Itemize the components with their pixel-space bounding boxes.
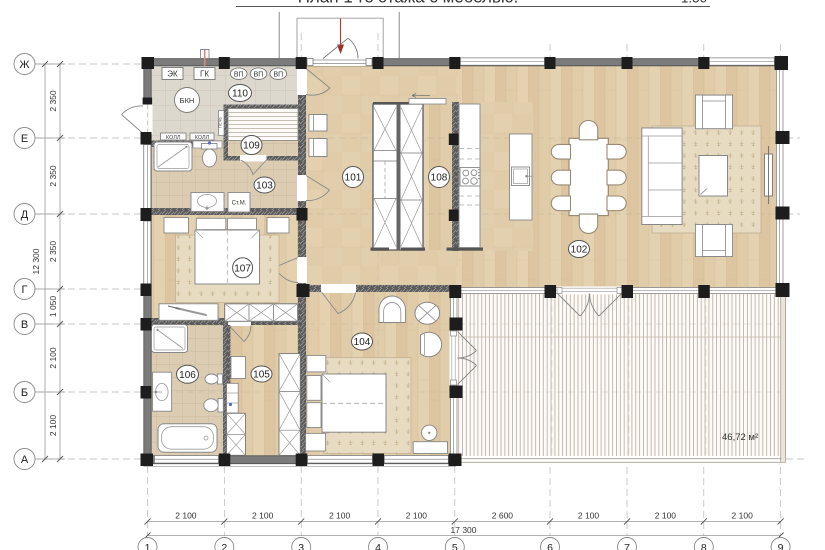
svg-text:А: А <box>21 454 29 466</box>
svg-text:2 100: 2 100 <box>48 347 58 369</box>
svg-text:2: 2 <box>221 542 227 550</box>
svg-text:106: 106 <box>179 370 196 381</box>
svg-text:104: 104 <box>354 337 371 348</box>
svg-text:ВП: ВП <box>234 72 244 79</box>
svg-text:108: 108 <box>431 173 448 184</box>
svg-text:7: 7 <box>624 542 630 550</box>
svg-text:2 100: 2 100 <box>732 511 754 521</box>
svg-text:ВП: ВП <box>254 72 264 79</box>
svg-text:12 300: 12 300 <box>31 248 41 274</box>
svg-text:2 100: 2 100 <box>578 511 600 521</box>
svg-text:2 350: 2 350 <box>48 90 58 112</box>
svg-text:109: 109 <box>243 141 260 152</box>
svg-text:46,72 м²: 46,72 м² <box>722 432 758 443</box>
svg-text:102: 102 <box>571 245 588 256</box>
svg-text:3: 3 <box>298 542 304 550</box>
svg-text:Е: Е <box>21 133 28 145</box>
svg-text:17 300: 17 300 <box>451 525 477 535</box>
svg-text:2 100: 2 100 <box>406 511 428 521</box>
svg-text:103: 103 <box>256 181 273 192</box>
svg-text:5: 5 <box>452 542 458 550</box>
svg-text:2 350: 2 350 <box>48 241 58 263</box>
svg-text:8: 8 <box>701 542 707 550</box>
svg-text:1: 1 <box>145 542 151 550</box>
svg-text:ЭК: ЭК <box>167 70 178 79</box>
svg-text:Б: Б <box>21 387 28 399</box>
svg-text:1 050: 1 050 <box>48 296 58 318</box>
svg-text:Г: Г <box>22 284 28 296</box>
svg-text:2 100: 2 100 <box>175 511 197 521</box>
svg-text:КОЛЛ: КОЛЛ <box>195 135 210 141</box>
svg-text:1:50: 1:50 <box>681 0 707 6</box>
svg-text:Ст.М.: Ст.М. <box>232 201 247 207</box>
svg-text:4: 4 <box>375 542 381 550</box>
svg-text:Д: Д <box>21 209 29 221</box>
svg-text:БКН: БКН <box>180 96 195 105</box>
svg-text:План 1-го этажа с мебелью.: План 1-го этажа с мебелью. <box>298 0 519 7</box>
svg-text:2 100: 2 100 <box>655 511 677 521</box>
svg-text:6: 6 <box>547 542 553 550</box>
svg-text:2 100: 2 100 <box>329 511 351 521</box>
svg-text:9: 9 <box>778 542 784 550</box>
svg-text:2 100: 2 100 <box>252 511 274 521</box>
svg-text:ГК: ГК <box>200 70 209 79</box>
svg-text:101: 101 <box>345 173 362 184</box>
svg-text:2 600: 2 600 <box>492 511 514 521</box>
svg-text:ПЕЧЬ: ПЕЧЬ <box>218 117 223 129</box>
svg-text:Ж: Ж <box>19 59 29 71</box>
svg-text:107: 107 <box>234 263 251 274</box>
svg-text:2 100: 2 100 <box>48 415 58 437</box>
svg-text:КОЛЛ: КОЛЛ <box>166 135 181 141</box>
svg-text:2 350: 2 350 <box>48 165 58 187</box>
svg-text:105: 105 <box>253 370 270 381</box>
svg-text:В: В <box>21 319 28 331</box>
svg-text:110: 110 <box>232 89 248 100</box>
svg-text:ВП: ВП <box>273 72 283 79</box>
